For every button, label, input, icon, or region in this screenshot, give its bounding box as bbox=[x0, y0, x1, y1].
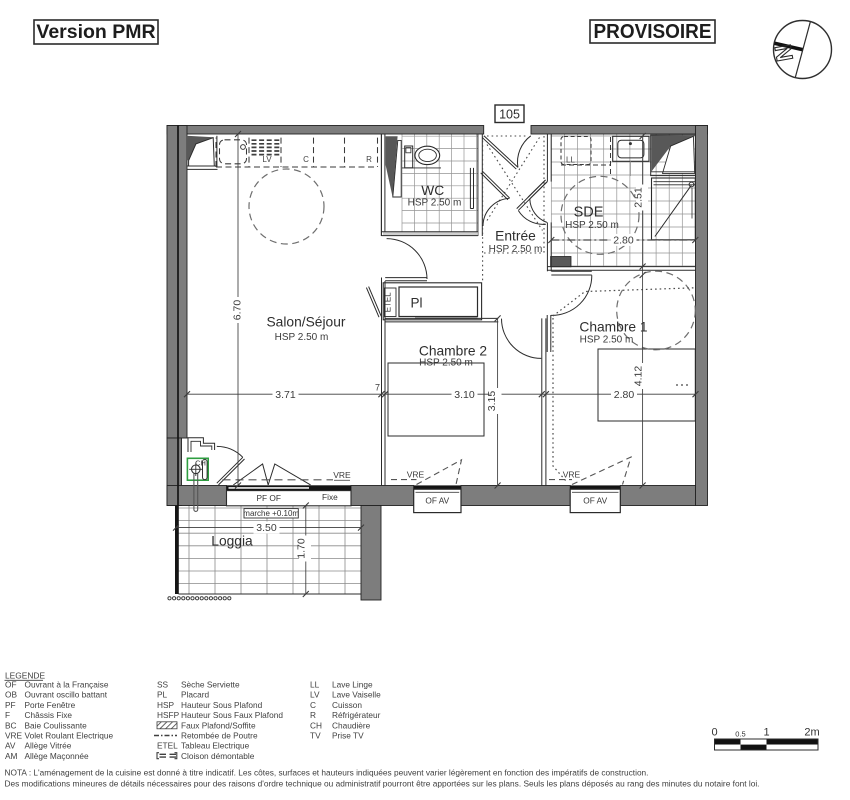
svg-text:4.12: 4.12 bbox=[633, 366, 645, 387]
svg-text:HSP: HSP bbox=[157, 700, 175, 710]
svg-text:Loggia: Loggia bbox=[211, 534, 253, 549]
svg-text:TV: TV bbox=[310, 731, 321, 741]
svg-text:Sèche Serviette: Sèche Serviette bbox=[181, 680, 240, 690]
svg-text:Ouvrant oscillo battant: Ouvrant oscillo battant bbox=[25, 690, 108, 700]
svg-text:Version PMR: Version PMR bbox=[36, 21, 155, 43]
svg-text:Lave Vaiselle: Lave Vaiselle bbox=[332, 690, 381, 700]
svg-text:AV: AV bbox=[5, 741, 16, 751]
svg-text:BC: BC bbox=[5, 720, 17, 730]
svg-text:105: 105 bbox=[499, 108, 520, 122]
svg-text:Ouvrant à la Française: Ouvrant à la Française bbox=[25, 680, 109, 690]
svg-text:3.71: 3.71 bbox=[275, 389, 296, 401]
svg-text:Porte Fenêtre: Porte Fenêtre bbox=[25, 700, 76, 710]
svg-text:C: C bbox=[310, 700, 316, 710]
svg-text:2.80: 2.80 bbox=[613, 234, 634, 246]
svg-text:WC: WC bbox=[421, 183, 444, 198]
svg-text:2.51: 2.51 bbox=[633, 187, 645, 208]
svg-text:2.80: 2.80 bbox=[614, 389, 635, 401]
svg-text:Allège Vitrée: Allège Vitrée bbox=[25, 741, 72, 751]
svg-text:HSP 2.50 m: HSP 2.50 m bbox=[419, 358, 473, 369]
svg-text:VRE: VRE bbox=[563, 470, 581, 480]
svg-text:Entrée: Entrée bbox=[495, 229, 536, 244]
svg-text:Chambre 2: Chambre 2 bbox=[419, 344, 487, 359]
svg-text:LV: LV bbox=[262, 155, 272, 164]
svg-text:Châssis Fixe: Châssis Fixe bbox=[25, 710, 73, 720]
svg-text:3.50: 3.50 bbox=[256, 522, 277, 534]
svg-text:OF: OF bbox=[5, 680, 17, 690]
svg-text:HSP 2.50 m: HSP 2.50 m bbox=[408, 198, 462, 209]
svg-text:R: R bbox=[366, 155, 372, 164]
svg-text:OF AV: OF AV bbox=[583, 496, 607, 506]
svg-text:LL: LL bbox=[310, 680, 320, 690]
svg-text:F: F bbox=[5, 710, 10, 720]
svg-text:Prise TV: Prise TV bbox=[332, 731, 364, 741]
svg-text:LV: LV bbox=[310, 690, 320, 700]
svg-text:SDE: SDE bbox=[574, 205, 604, 221]
svg-text:ETEL: ETEL bbox=[157, 741, 178, 751]
svg-text:0: 0 bbox=[711, 727, 717, 739]
svg-text:C: C bbox=[303, 155, 309, 164]
svg-text:Cuisson: Cuisson bbox=[332, 700, 362, 710]
svg-text:Placard: Placard bbox=[181, 690, 210, 700]
svg-text:Fixe: Fixe bbox=[322, 492, 338, 502]
svg-text:Baie Coulissante: Baie Coulissante bbox=[25, 720, 88, 730]
svg-text:0.5: 0.5 bbox=[735, 730, 745, 739]
svg-text:PROVISOIRE: PROVISOIRE bbox=[594, 21, 712, 43]
svg-text:AM: AM bbox=[5, 751, 18, 761]
svg-text:Hauteur Sous Faux Plafond: Hauteur Sous Faux Plafond bbox=[181, 710, 283, 720]
svg-text:Réfrigérateur: Réfrigérateur bbox=[332, 710, 381, 720]
svg-text:NOTA : L'aménagement de la cui: NOTA : L'aménagement de la cuisine est d… bbox=[5, 768, 649, 778]
svg-text:Pl: Pl bbox=[410, 296, 422, 311]
svg-text:HSP 2.50 m: HSP 2.50 m bbox=[565, 220, 619, 231]
svg-text:PL: PL bbox=[157, 690, 168, 700]
svg-text:R: R bbox=[310, 710, 316, 720]
svg-text:CH: CH bbox=[195, 458, 206, 467]
svg-text:Des modifications mineures de: Des modifications mineures de détails né… bbox=[5, 779, 760, 789]
svg-text:CH: CH bbox=[310, 720, 322, 730]
svg-text:Faux Plafond/Soffite: Faux Plafond/Soffite bbox=[181, 720, 256, 730]
svg-text:OB: OB bbox=[5, 690, 17, 700]
svg-text:Tableau Electrique: Tableau Electrique bbox=[181, 741, 250, 751]
svg-text:marche +0.10m: marche +0.10m bbox=[243, 509, 299, 518]
svg-text:PF OF: PF OF bbox=[256, 493, 280, 503]
svg-text:LL: LL bbox=[566, 156, 575, 165]
svg-text:HSFP: HSFP bbox=[157, 710, 180, 720]
svg-text:Hauteur Sous Plafond: Hauteur Sous Plafond bbox=[181, 700, 263, 710]
svg-text:Volet Roulant Electrique: Volet Roulant Electrique bbox=[25, 731, 114, 741]
svg-text:7: 7 bbox=[375, 383, 380, 393]
svg-text:1: 1 bbox=[763, 727, 769, 739]
svg-text:3.10: 3.10 bbox=[454, 389, 475, 401]
svg-text:Retombée de Poutre: Retombée de Poutre bbox=[181, 731, 258, 741]
svg-text:VRE: VRE bbox=[407, 470, 425, 480]
svg-text:SS: SS bbox=[157, 680, 169, 690]
svg-text:VRE: VRE bbox=[5, 731, 23, 741]
svg-text:Cloison démontable: Cloison démontable bbox=[181, 751, 255, 761]
svg-text:6.70: 6.70 bbox=[232, 300, 244, 321]
svg-text:VRE: VRE bbox=[333, 470, 351, 480]
svg-text:HSP 2.50 m: HSP 2.50 m bbox=[275, 332, 329, 343]
svg-text:HSP 2.50 m: HSP 2.50 m bbox=[580, 335, 634, 346]
svg-text:Allège Maçonnée: Allège Maçonnée bbox=[25, 751, 90, 761]
svg-text:Chaudière: Chaudière bbox=[332, 720, 371, 730]
svg-text:OF AV: OF AV bbox=[425, 496, 449, 506]
svg-text:PF: PF bbox=[5, 700, 16, 710]
svg-text:2m: 2m bbox=[804, 727, 819, 739]
svg-text:HSP 2.50 m: HSP 2.50 m bbox=[489, 244, 543, 255]
svg-text:Chambre 1: Chambre 1 bbox=[579, 320, 647, 335]
svg-text:Salon/Séjour: Salon/Séjour bbox=[266, 315, 345, 330]
svg-text:3.15: 3.15 bbox=[486, 391, 498, 412]
svg-text:Lave Linge: Lave Linge bbox=[332, 680, 373, 690]
svg-text:1.70: 1.70 bbox=[296, 538, 308, 559]
